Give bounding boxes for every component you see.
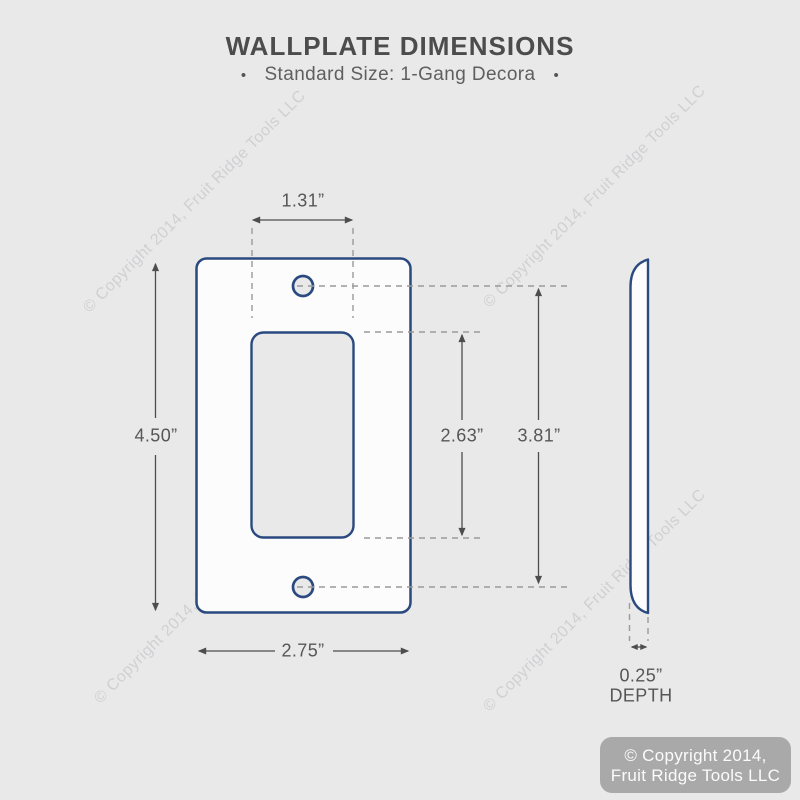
device-opening (252, 333, 354, 538)
copyright-badge: © Copyright 2014, Fruit Ridge Tools LLC (600, 737, 791, 793)
wallplate-diagram (0, 0, 800, 800)
page: © Copyright 2014, Fruit Ridge Tools LLC … (0, 0, 800, 800)
dim-label-depth-word: DEPTH (609, 686, 672, 707)
copyright-badge-line2: Fruit Ridge Tools LLC (600, 766, 791, 786)
dim-label-plate-height: 4.50” (134, 426, 177, 447)
dim-label-screw-spacing: 3.81” (517, 426, 560, 447)
dim-label-opening-height: 2.63” (440, 426, 483, 447)
dim-label-plate-width: 2.75” (281, 641, 324, 662)
dim-label-depth-value: 0.25” (619, 666, 662, 687)
dim-label-opening-width: 1.31” (281, 191, 324, 212)
plate-side-profile (631, 260, 649, 614)
copyright-badge-line1: © Copyright 2014, (600, 746, 791, 766)
